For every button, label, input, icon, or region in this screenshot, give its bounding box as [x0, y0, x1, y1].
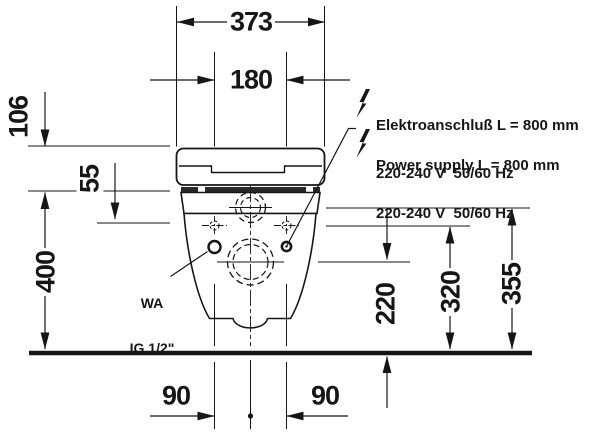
lightning-icon — [357, 89, 371, 118]
bowl-body — [184, 214, 316, 328]
electrical-annotation-en-line1: Power supply L = 800 mm — [376, 158, 560, 174]
dimension-rim-height: 400 — [33, 248, 60, 296]
dimension-fixing-span: 180 — [227, 67, 275, 94]
dimension-355: 355 — [499, 260, 526, 308]
water-connection-label-line2: IG 1/2" — [130, 341, 175, 356]
electrical-annotation-en-line2: 220-240 V 50/60 Hz — [376, 206, 560, 222]
seat-lid — [177, 149, 325, 186]
electrical-annotation-en: Power supply L = 800 mm 220-240 V 50/60 … — [376, 126, 560, 254]
water-connection-label-line1: WA — [130, 296, 175, 311]
lightning-icon — [357, 129, 371, 158]
lightning-icons — [357, 89, 371, 158]
water-connection-label: WA IG 1/2" — [130, 266, 175, 386]
dimension-lid-height: 106 — [6, 93, 33, 141]
center-dot — [248, 413, 253, 418]
dimension-320: 320 — [438, 268, 465, 316]
dimension-55: 55 — [77, 162, 104, 196]
technical-drawing-canvas: 373 180 106 55 400 220 320 355 90 90 Ele… — [0, 0, 600, 436]
dimension-outlet-height: 220 — [373, 280, 400, 328]
dimension-90-left: 90 — [159, 383, 193, 410]
dimension-90-right: 90 — [308, 383, 342, 410]
dimension-overall-width: 373 — [227, 9, 275, 36]
